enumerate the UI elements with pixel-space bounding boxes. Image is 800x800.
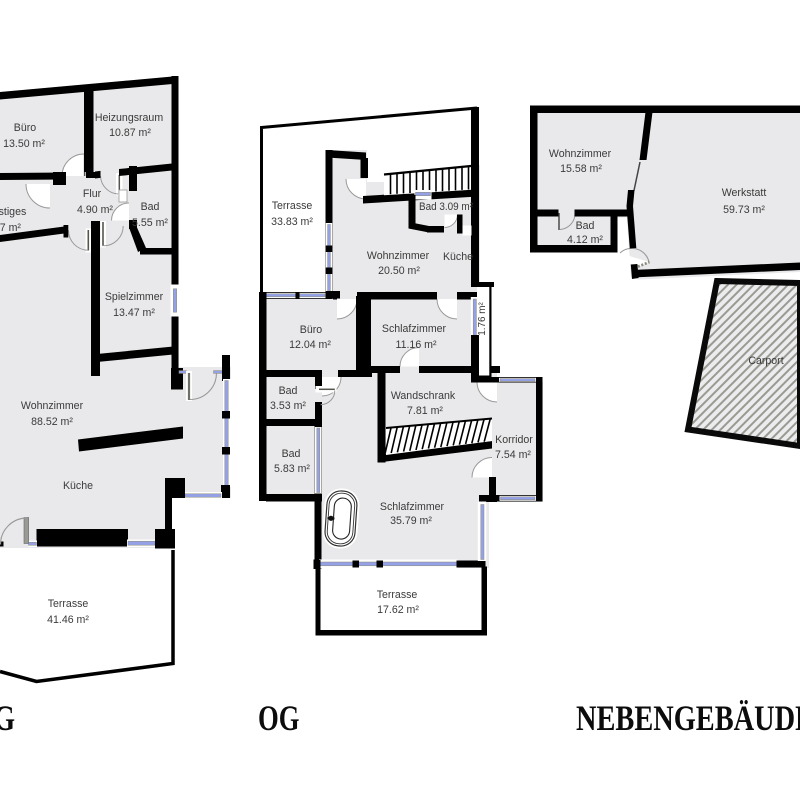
svg-text:OG: OG xyxy=(258,698,300,738)
svg-text:3.53 m²: 3.53 m² xyxy=(270,400,306,412)
svg-text:Wohnzimmer: Wohnzimmer xyxy=(549,148,612,160)
svg-text:4.90 m²: 4.90 m² xyxy=(77,204,113,216)
svg-text:Sonstiges: Sonstiges xyxy=(0,206,26,218)
svg-text:Küche: Küche xyxy=(443,251,473,263)
svg-text:7.54 m²: 7.54 m² xyxy=(495,449,531,461)
svg-text:13.47 m²: 13.47 m² xyxy=(113,307,155,319)
svg-text:Spielzimmer: Spielzimmer xyxy=(105,291,164,303)
svg-text:EG: EG xyxy=(0,698,15,738)
svg-text:11.16 m²: 11.16 m² xyxy=(395,339,436,351)
svg-text:Flur: Flur xyxy=(83,188,102,200)
svg-text:41.46 m²: 41.46 m² xyxy=(47,614,89,626)
svg-text:59.73 m²: 59.73 m² xyxy=(723,204,765,216)
svg-text:Carport: Carport xyxy=(748,355,783,367)
svg-text:Bad 3.09 m²: Bad 3.09 m² xyxy=(419,201,473,213)
svg-text:Schlafzimmer: Schlafzimmer xyxy=(380,501,445,513)
svg-text:35.79 m²: 35.79 m² xyxy=(390,515,432,527)
svg-text:Büro: Büro xyxy=(300,324,322,336)
svg-text:Schlafzimmer: Schlafzimmer xyxy=(382,323,447,335)
svg-text:20.50 m²: 20.50 m² xyxy=(378,265,420,277)
svg-text:7.81 m²: 7.81 m² xyxy=(407,405,443,417)
svg-text:Bad: Bad xyxy=(576,220,595,232)
svg-text:Küche: Küche xyxy=(63,480,93,492)
svg-text:33.83 m²: 33.83 m² xyxy=(271,216,313,228)
svg-text:12.04 m²: 12.04 m² xyxy=(289,339,331,351)
svg-text:Heizungsraum: Heizungsraum xyxy=(95,112,163,124)
svg-text:NEBENGEBÄUDE: NEBENGEBÄUDE xyxy=(576,698,800,738)
svg-text:17.62 m²: 17.62 m² xyxy=(377,604,419,616)
svg-text:Bad: Bad xyxy=(282,448,301,460)
svg-text:Terrasse: Terrasse xyxy=(48,598,89,610)
svg-text:4.12 m²: 4.12 m² xyxy=(567,234,603,246)
svg-text:Büro: Büro xyxy=(14,122,36,134)
svg-text:9.07 m²: 9.07 m² xyxy=(0,222,21,234)
svg-text:Bad: Bad xyxy=(141,201,160,213)
svg-text:1.76 m²: 1.76 m² xyxy=(477,302,488,336)
svg-text:15.58 m²: 15.58 m² xyxy=(560,163,602,175)
svg-text:Terrasse: Terrasse xyxy=(377,589,418,601)
svg-text:Terrasse: Terrasse xyxy=(272,200,313,212)
svg-text:10.87 m²: 10.87 m² xyxy=(109,127,151,139)
svg-text:13.50 m²: 13.50 m² xyxy=(3,138,45,150)
svg-text:5.55 m²: 5.55 m² xyxy=(132,217,168,229)
svg-text:Wohnzimmer: Wohnzimmer xyxy=(21,400,84,412)
svg-text:Wohnzimmer: Wohnzimmer xyxy=(367,250,430,262)
svg-text:88.52 m²: 88.52 m² xyxy=(31,416,73,428)
svg-text:Korridor: Korridor xyxy=(495,434,533,446)
svg-text:Wandschrank: Wandschrank xyxy=(391,390,456,402)
svg-text:Bad: Bad xyxy=(279,385,298,397)
svg-text:Werkstatt: Werkstatt xyxy=(722,187,767,199)
svg-text:5.83 m²: 5.83 m² xyxy=(274,463,310,475)
